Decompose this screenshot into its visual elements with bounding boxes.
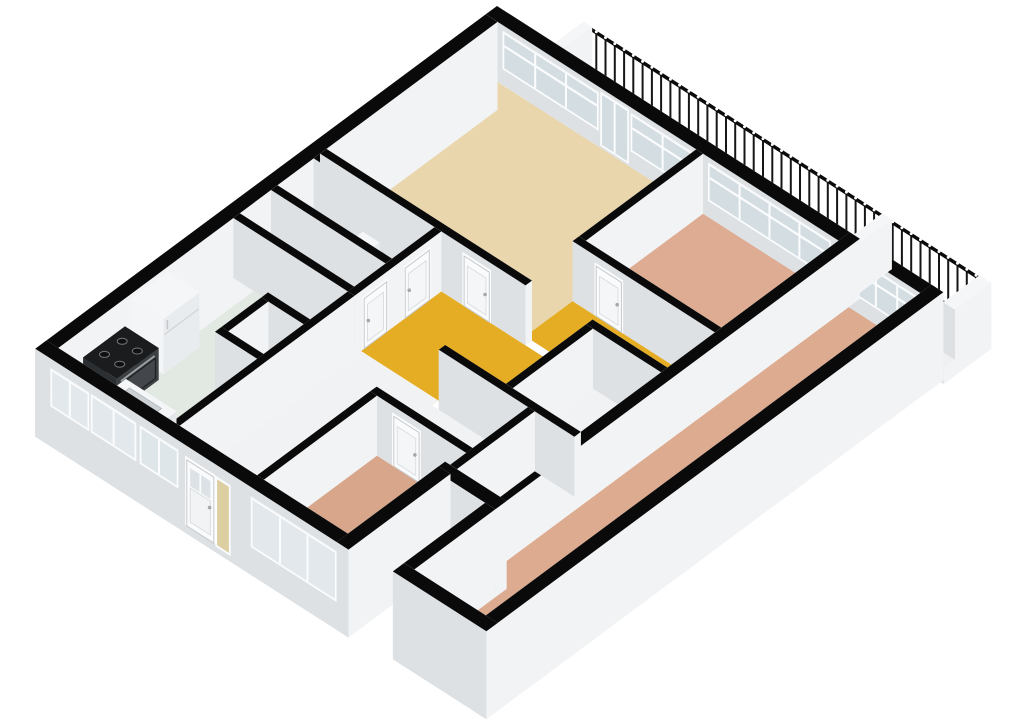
floorplan-page	[0, 0, 1024, 724]
floorplan-3d-render	[0, 0, 1024, 724]
